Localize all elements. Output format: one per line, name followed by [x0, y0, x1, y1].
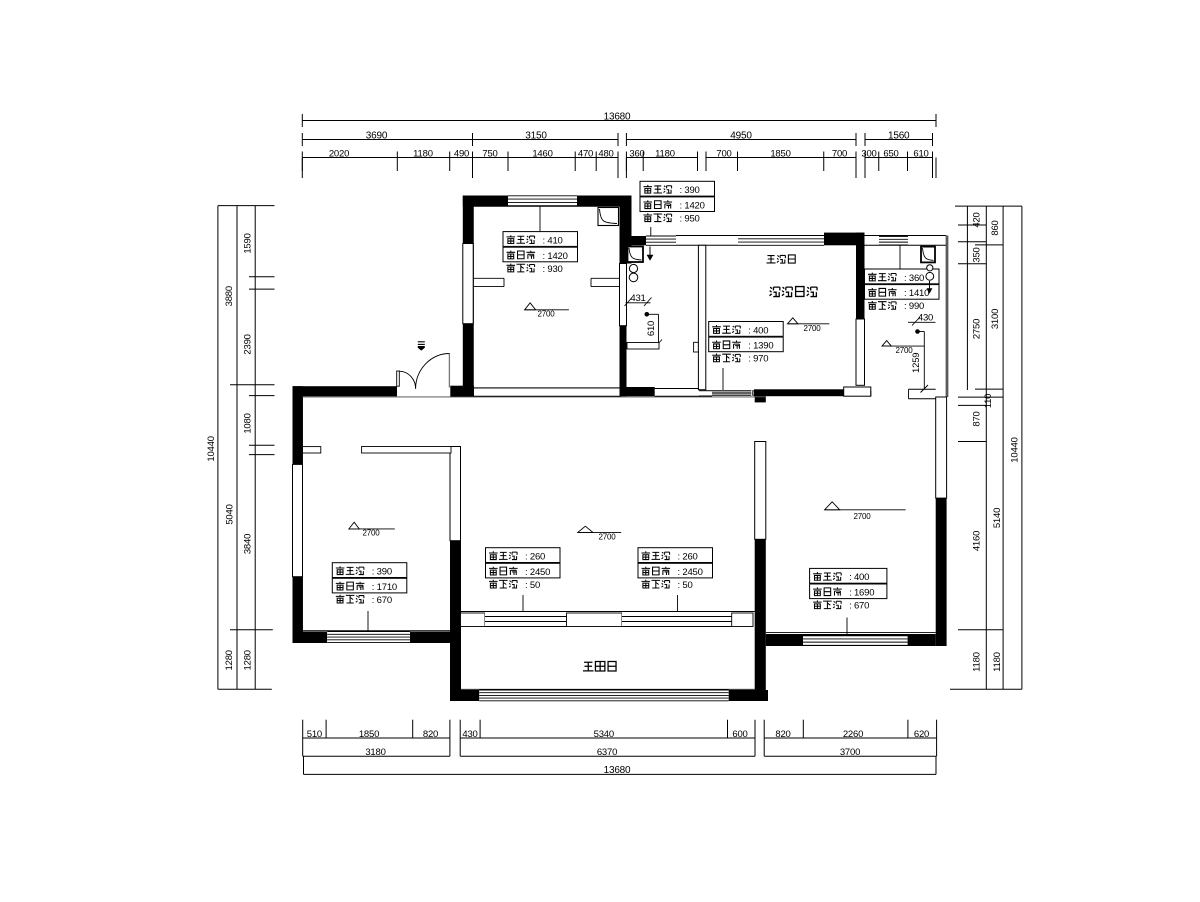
svg-text:: 410: : 410	[543, 235, 563, 246]
svg-text:: 2450: : 2450	[678, 567, 703, 578]
svg-text:1280: 1280	[243, 650, 254, 670]
svg-text:820: 820	[775, 729, 790, 740]
svg-text:700: 700	[716, 148, 731, 159]
svg-text:3150: 3150	[525, 131, 547, 142]
svg-text:2700: 2700	[363, 528, 381, 537]
svg-text:1180: 1180	[972, 652, 983, 672]
svg-text:420: 420	[972, 212, 983, 227]
svg-text:1850: 1850	[770, 148, 790, 159]
svg-text:: 390: : 390	[372, 567, 392, 578]
svg-text:: 930: : 930	[543, 264, 563, 275]
svg-text:620: 620	[914, 729, 929, 740]
svg-text:2700: 2700	[804, 324, 822, 333]
svg-text:610: 610	[646, 321, 657, 336]
svg-text:750: 750	[482, 148, 497, 159]
svg-text:470: 470	[578, 148, 593, 159]
svg-text:3180: 3180	[365, 747, 385, 758]
svg-text:860: 860	[990, 220, 1001, 235]
svg-text:: 1420: : 1420	[680, 201, 705, 212]
svg-text:: 50: : 50	[678, 580, 693, 591]
svg-text:2260: 2260	[843, 729, 863, 740]
svg-text:3100: 3100	[990, 309, 1001, 329]
svg-text:1180: 1180	[655, 148, 675, 159]
svg-text:820: 820	[423, 729, 438, 740]
svg-text:: 970: : 970	[748, 354, 768, 365]
svg-text:6370: 6370	[597, 747, 617, 758]
svg-text:431: 431	[630, 293, 645, 304]
svg-text:: 390: : 390	[680, 185, 700, 196]
svg-text:4950: 4950	[730, 131, 752, 142]
svg-text:5340: 5340	[594, 729, 614, 740]
svg-text:2700: 2700	[538, 310, 556, 319]
svg-text:: 1690: : 1690	[849, 588, 874, 599]
svg-text:: 670: : 670	[849, 601, 869, 612]
svg-text:: 50: : 50	[525, 580, 540, 591]
svg-text:430: 430	[462, 729, 477, 740]
svg-text:1850: 1850	[359, 729, 379, 740]
svg-text:1180: 1180	[992, 652, 1003, 672]
svg-text:: 2450: : 2450	[525, 567, 550, 578]
svg-text:2700: 2700	[854, 512, 872, 521]
svg-text:600: 600	[732, 729, 747, 740]
svg-text:1460: 1460	[532, 148, 552, 159]
svg-text:: 950: : 950	[680, 214, 700, 225]
svg-text:350: 350	[972, 247, 983, 262]
svg-text:3700: 3700	[840, 747, 860, 758]
svg-text:300: 300	[861, 148, 876, 159]
svg-text:1180: 1180	[413, 148, 433, 159]
svg-text:1259: 1259	[911, 353, 922, 373]
svg-text:1590: 1590	[243, 233, 254, 253]
svg-text:: 400: : 400	[849, 572, 869, 583]
svg-text:700: 700	[832, 148, 847, 159]
svg-text:: 1390: : 1390	[748, 341, 773, 352]
svg-text:10440: 10440	[206, 436, 217, 461]
svg-text:1080: 1080	[243, 413, 254, 433]
svg-text:3880: 3880	[224, 286, 235, 306]
svg-text:480: 480	[598, 148, 613, 159]
svg-text:: 400: : 400	[748, 325, 768, 336]
svg-text:2700: 2700	[896, 346, 914, 355]
svg-text:490: 490	[454, 148, 469, 159]
svg-text:: 670: : 670	[372, 595, 392, 606]
svg-text:4160: 4160	[972, 531, 983, 551]
svg-text:110: 110	[983, 394, 994, 409]
svg-text:5140: 5140	[992, 508, 1003, 528]
svg-text:430: 430	[918, 312, 933, 323]
svg-text:: 360: : 360	[904, 273, 924, 284]
svg-text:870: 870	[972, 411, 983, 426]
svg-text:1280: 1280	[224, 650, 235, 670]
svg-text:360: 360	[629, 148, 644, 159]
svg-text:13680: 13680	[604, 111, 631, 122]
svg-text:: 1420: : 1420	[543, 251, 568, 262]
svg-text:1560: 1560	[888, 131, 910, 142]
svg-text:: 1710: : 1710	[372, 582, 397, 593]
svg-text:: 990: : 990	[904, 301, 924, 312]
svg-text:2700: 2700	[599, 532, 617, 541]
svg-text:: 1410: : 1410	[904, 288, 929, 299]
svg-text:2390: 2390	[243, 334, 254, 354]
svg-text:2020: 2020	[329, 148, 349, 159]
svg-text:5040: 5040	[225, 504, 236, 524]
svg-text:3690: 3690	[366, 131, 388, 142]
svg-text:10440: 10440	[1010, 437, 1021, 462]
svg-text:3840: 3840	[243, 534, 254, 554]
svg-text:510: 510	[307, 729, 322, 740]
svg-text:: 260: : 260	[678, 552, 698, 563]
svg-text:: 260: : 260	[525, 552, 545, 563]
svg-text:13680: 13680	[604, 765, 631, 776]
svg-text:650: 650	[883, 148, 898, 159]
svg-text:2750: 2750	[972, 319, 983, 339]
svg-text:610: 610	[913, 148, 928, 159]
